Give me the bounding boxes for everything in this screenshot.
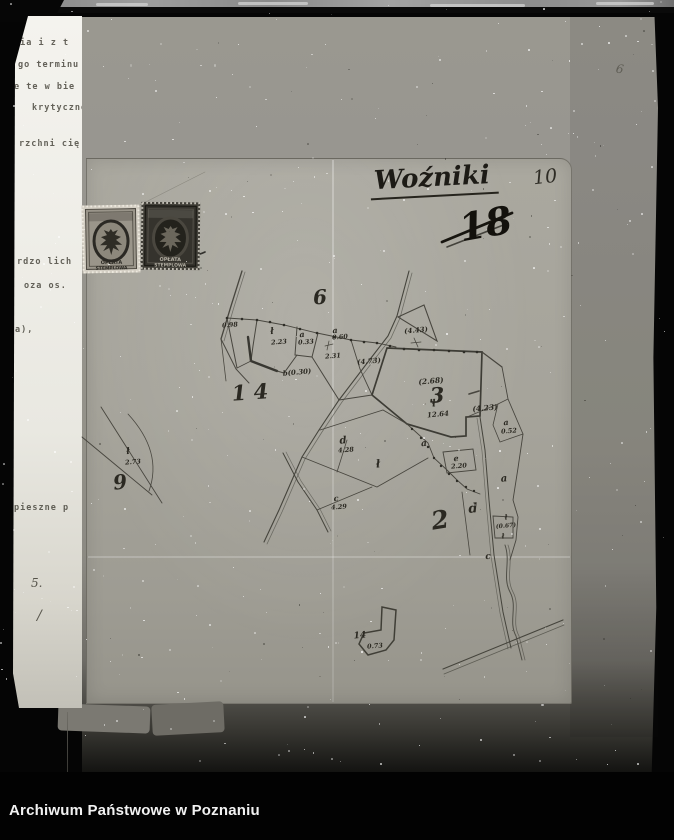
dust-speck bbox=[650, 428, 651, 429]
dust-speck bbox=[378, 108, 379, 109]
dust-speck bbox=[423, 437, 425, 439]
dark-speck bbox=[138, 654, 139, 655]
film-streak bbox=[96, 3, 148, 6]
dark-speck bbox=[548, 544, 549, 545]
dust-speck bbox=[212, 647, 213, 648]
dust-speck bbox=[67, 607, 68, 608]
map-label: 4.29 bbox=[331, 502, 347, 511]
dust-speck bbox=[595, 155, 596, 156]
dust-speck bbox=[70, 461, 72, 463]
dust-speck bbox=[632, 253, 634, 255]
dark-speck bbox=[603, 638, 605, 640]
dust-speck bbox=[608, 42, 610, 44]
dust-speck bbox=[13, 105, 15, 107]
dust-speck bbox=[605, 585, 606, 586]
dust-speck bbox=[616, 489, 618, 491]
dust-speck bbox=[331, 758, 333, 760]
dust-speck bbox=[86, 639, 87, 640]
dust-speck bbox=[91, 503, 92, 504]
dust-speck bbox=[528, 49, 530, 51]
dust-speck bbox=[539, 760, 541, 762]
dust-speck bbox=[476, 455, 477, 456]
dust-speck bbox=[652, 70, 653, 71]
map-label: 0.52 bbox=[501, 426, 517, 435]
dark-speck bbox=[552, 60, 553, 61]
dust-speck bbox=[159, 285, 160, 286]
dark-speck bbox=[127, 448, 129, 450]
dark-speck bbox=[537, 134, 539, 136]
map-label: 0.60 bbox=[332, 332, 348, 341]
dust-speck bbox=[288, 750, 290, 752]
dust-speck bbox=[607, 764, 608, 765]
dark-speck bbox=[323, 612, 324, 613]
dust-speck bbox=[155, 544, 156, 545]
map-label: a bbox=[421, 439, 428, 449]
dust-speck bbox=[641, 111, 642, 112]
dust-speck bbox=[650, 650, 652, 652]
dust-speck bbox=[38, 141, 40, 143]
dust-speck bbox=[326, 173, 327, 174]
dark-speck bbox=[465, 314, 466, 315]
dust-speck bbox=[419, 745, 420, 746]
dust-speck bbox=[388, 180, 390, 182]
dust-speck bbox=[232, 74, 233, 75]
dust-speck bbox=[10, 3, 12, 5]
dust-speck bbox=[303, 488, 305, 490]
dust-speck bbox=[538, 346, 540, 348]
dust-speck bbox=[269, 13, 270, 14]
dust-speck bbox=[388, 660, 389, 661]
dust-speck bbox=[83, 348, 84, 349]
dark-speck bbox=[541, 346, 542, 347]
film-streak bbox=[430, 4, 525, 7]
map-label: 12.64 bbox=[427, 409, 450, 420]
dust-speck bbox=[641, 213, 643, 215]
typed-line: krytyczne bbox=[32, 103, 82, 113]
crossed-out-number: 18 bbox=[455, 197, 515, 251]
caption-bar: Archiwum Państwowe w Poznaniu bbox=[0, 772, 674, 840]
dust-speck bbox=[192, 396, 193, 397]
dust-speck bbox=[361, 651, 362, 652]
stamp-text: STEMPLOWA bbox=[154, 262, 187, 268]
dust-speck bbox=[22, 277, 23, 278]
map-label: c bbox=[333, 493, 339, 503]
dark-speck bbox=[622, 535, 623, 536]
dust-speck bbox=[539, 558, 541, 560]
revenue-stamp-left: OPŁATA STEMPLOWA bbox=[81, 204, 140, 273]
map-label: 9 bbox=[112, 469, 129, 495]
dust-speck bbox=[50, 289, 51, 290]
dust-speck bbox=[516, 642, 517, 643]
dust-speck bbox=[209, 624, 211, 626]
dark-speck bbox=[195, 264, 196, 265]
dust-speck bbox=[12, 377, 13, 378]
map-label: 2.20 bbox=[451, 461, 467, 470]
dark-speck bbox=[231, 216, 233, 218]
dust-speck bbox=[282, 211, 283, 212]
dust-speck bbox=[262, 308, 263, 309]
dust-speck bbox=[183, 516, 184, 517]
dust-speck bbox=[186, 261, 187, 262]
dust-speck bbox=[320, 593, 321, 594]
dust-speck bbox=[149, 64, 150, 65]
dust-speck bbox=[76, 676, 77, 677]
dust-speck bbox=[331, 14, 332, 15]
dust-speck bbox=[284, 188, 286, 190]
typed-line: rdzo lich bbox=[17, 257, 72, 267]
pencil-mark: 6 bbox=[615, 61, 625, 76]
dust-speck bbox=[249, 510, 251, 512]
dust-speck bbox=[278, 754, 280, 756]
dust-speck bbox=[341, 99, 342, 100]
dust-speck bbox=[651, 166, 653, 168]
dust-speck bbox=[103, 575, 104, 576]
dust-speck bbox=[309, 501, 310, 502]
map-label: 1 4 bbox=[231, 378, 269, 405]
dust-speck bbox=[435, 344, 437, 346]
dust-speck bbox=[403, 199, 405, 201]
dust-speck bbox=[84, 229, 86, 231]
dust-speck bbox=[404, 381, 405, 382]
dust-speck bbox=[233, 567, 234, 568]
dust-speck bbox=[256, 126, 257, 127]
dust-speck bbox=[3, 629, 4, 630]
dark-speck bbox=[315, 294, 317, 296]
dust-speck bbox=[637, 763, 639, 765]
dust-speck bbox=[541, 704, 543, 706]
dust-speck bbox=[446, 9, 447, 10]
dust-speck bbox=[199, 370, 200, 371]
dust-speck bbox=[636, 124, 637, 125]
dust-speck bbox=[446, 333, 447, 334]
dust-speck bbox=[276, 19, 277, 20]
dust-speck bbox=[338, 642, 340, 644]
dust-speck bbox=[261, 659, 262, 660]
archive-name-label: Archiwum Państwowe w Poznaniu bbox=[9, 802, 260, 819]
dust-speck bbox=[196, 49, 198, 51]
typed-line: nia i z t bbox=[14, 38, 69, 48]
dust-speck bbox=[458, 449, 460, 451]
page-number: 10 bbox=[532, 165, 558, 189]
dust-speck bbox=[0, 642, 2, 644]
dust-speck bbox=[2, 483, 4, 485]
dust-speck bbox=[170, 295, 171, 296]
dust-speck bbox=[186, 294, 187, 295]
dust-speck bbox=[179, 122, 180, 123]
typed-line: rzchni cię bbox=[19, 139, 80, 149]
dust-speck bbox=[440, 718, 441, 719]
dust-speck bbox=[370, 363, 372, 365]
dust-speck bbox=[74, 322, 75, 323]
dust-speck bbox=[660, 1, 662, 3]
dust-speck bbox=[489, 309, 490, 310]
dust-speck bbox=[183, 162, 184, 163]
dark-speck bbox=[584, 400, 586, 402]
backing-paper-right-shade bbox=[570, 17, 658, 737]
film-edge-band bbox=[0, 0, 674, 13]
dust-speck bbox=[443, 443, 444, 444]
dust-speck bbox=[179, 387, 180, 388]
dust-speck bbox=[535, 721, 536, 722]
map-label: a bbox=[500, 473, 507, 485]
dust-speck bbox=[659, 318, 660, 319]
map-label: 2.73 bbox=[125, 457, 141, 466]
dark-speck bbox=[200, 267, 202, 269]
dust-speck bbox=[111, 19, 112, 20]
map-label: 2.31 bbox=[325, 351, 341, 360]
dust-speck bbox=[445, 628, 446, 629]
dust-speck bbox=[214, 64, 216, 66]
dust-speck bbox=[533, 267, 535, 269]
dust-speck bbox=[275, 449, 276, 450]
dust-speck bbox=[87, 30, 89, 32]
dark-speck bbox=[507, 607, 508, 608]
dust-speck bbox=[141, 657, 142, 658]
dust-speck bbox=[335, 642, 337, 644]
dust-speck bbox=[168, 288, 170, 290]
typed-line: e te w bie bbox=[14, 82, 75, 92]
dark-speck bbox=[307, 143, 309, 145]
dust-speck bbox=[71, 610, 72, 611]
dust-speck bbox=[249, 86, 251, 88]
dust-speck bbox=[485, 137, 487, 139]
typed-line: oza os. bbox=[24, 281, 67, 291]
dust-speck bbox=[420, 659, 422, 661]
dust-speck bbox=[231, 190, 232, 191]
dark-speck bbox=[483, 238, 484, 239]
map-label: ł bbox=[501, 531, 504, 540]
dust-speck bbox=[547, 270, 549, 272]
dust-speck bbox=[340, 761, 341, 762]
fold-crease-horizontal bbox=[88, 556, 570, 558]
map-label: ł bbox=[432, 398, 437, 409]
dust-speck bbox=[16, 86, 17, 87]
dust-speck bbox=[594, 142, 595, 143]
dust-speck bbox=[120, 412, 121, 413]
dust-speck bbox=[254, 632, 256, 634]
dust-speck bbox=[513, 754, 514, 755]
dark-speck bbox=[529, 236, 531, 238]
dark-speck bbox=[549, 608, 551, 610]
dark-speck bbox=[512, 630, 513, 631]
dust-speck bbox=[325, 44, 326, 45]
map-label: 4.28 bbox=[338, 445, 354, 454]
dust-speck bbox=[130, 399, 131, 400]
dust-speck bbox=[543, 8, 545, 10]
dark-speck bbox=[270, 174, 272, 176]
archival-photo-viewer: nia i z tgo terminue te w biekrytycznerz… bbox=[0, 0, 674, 840]
map-label: 0.98 bbox=[222, 320, 238, 329]
dust-speck bbox=[573, 133, 574, 134]
dust-speck bbox=[610, 463, 611, 464]
dust-speck bbox=[367, 207, 368, 208]
dark-speck bbox=[617, 209, 618, 210]
dust-speck bbox=[71, 491, 72, 492]
dust-speck bbox=[343, 586, 345, 588]
dust-speck bbox=[546, 154, 547, 155]
dust-speck bbox=[383, 250, 385, 252]
dust-speck bbox=[499, 450, 501, 452]
dust-speck bbox=[380, 250, 381, 251]
dark-speck bbox=[247, 181, 248, 182]
dust-speck bbox=[565, 21, 566, 22]
dust-speck bbox=[649, 11, 650, 12]
dust-speck bbox=[432, 440, 433, 441]
dark-speck bbox=[641, 689, 642, 690]
stamp-text: OPŁATA bbox=[101, 260, 123, 266]
map-label: a bbox=[503, 417, 509, 427]
film-streak bbox=[238, 2, 308, 5]
dust-speck bbox=[212, 303, 213, 304]
dust-speck bbox=[54, 451, 56, 453]
dust-speck bbox=[177, 692, 179, 694]
dust-speck bbox=[155, 80, 156, 81]
stamp-text: STEMPLOWA bbox=[95, 265, 128, 272]
dust-speck bbox=[191, 439, 192, 440]
dark-speck bbox=[432, 83, 433, 84]
dust-speck bbox=[663, 537, 664, 538]
map-label: c bbox=[485, 552, 491, 562]
dust-speck bbox=[85, 735, 86, 736]
handwritten-mark: / bbox=[37, 608, 42, 624]
dust-speck bbox=[6, 678, 7, 679]
dust-speck bbox=[375, 118, 376, 119]
dust-speck bbox=[108, 264, 109, 265]
dust-speck bbox=[369, 704, 370, 705]
map-label: d bbox=[468, 501, 478, 517]
dust-speck bbox=[91, 169, 92, 170]
dust-speck bbox=[485, 458, 486, 459]
dust-speck bbox=[640, 18, 642, 20]
dust-speck bbox=[3, 463, 5, 465]
film-streak bbox=[596, 2, 654, 5]
dust-speck bbox=[511, 533, 513, 535]
map-label: 2.23 bbox=[271, 337, 287, 346]
dust-speck bbox=[576, 759, 577, 760]
dust-speck bbox=[48, 551, 50, 553]
dust-speck bbox=[598, 69, 599, 70]
dust-speck bbox=[629, 220, 630, 221]
map-label: ł bbox=[270, 327, 274, 337]
dust-speck bbox=[1, 669, 3, 671]
map-label: 14 bbox=[353, 630, 366, 641]
dust-speck bbox=[664, 331, 665, 332]
dust-speck bbox=[14, 589, 15, 590]
dust-speck bbox=[497, 487, 499, 489]
dust-speck bbox=[170, 728, 172, 730]
typed-document-strip: nia i z tgo terminue te w biekrytycznerz… bbox=[13, 16, 82, 708]
dust-speck bbox=[312, 157, 314, 159]
fold-crease-vertical bbox=[332, 160, 334, 702]
dust-speck bbox=[625, 35, 627, 37]
dust-speck bbox=[216, 187, 217, 188]
dark-speck bbox=[386, 300, 388, 302]
dark-speck bbox=[207, 270, 208, 271]
dust-speck bbox=[439, 59, 441, 61]
dust-speck bbox=[545, 627, 546, 628]
map-label: ł bbox=[504, 512, 507, 521]
torn-paper-fragment bbox=[151, 701, 225, 736]
dust-speck bbox=[412, 404, 413, 405]
dust-speck bbox=[176, 410, 178, 412]
dust-speck bbox=[599, 26, 600, 27]
dust-speck bbox=[480, 339, 481, 340]
dust-speck bbox=[453, 605, 454, 606]
dark-speck bbox=[337, 535, 338, 536]
dust-speck bbox=[93, 569, 94, 570]
dark-speck bbox=[351, 98, 353, 100]
dust-speck bbox=[360, 433, 361, 434]
typed-line: go terminu bbox=[18, 60, 79, 70]
dust-speck bbox=[197, 585, 199, 587]
typed-line: pieszne p bbox=[14, 503, 69, 513]
dust-speck bbox=[297, 240, 298, 241]
dust-speck bbox=[293, 181, 294, 182]
dust-speck bbox=[43, 263, 45, 265]
dust-speck bbox=[225, 213, 227, 215]
dust-speck bbox=[130, 64, 132, 66]
dust-speck bbox=[333, 255, 335, 257]
map-label: 0.33 bbox=[298, 337, 314, 346]
dust-speck bbox=[282, 380, 283, 381]
dust-speck bbox=[27, 419, 29, 421]
map-label: 0.73 bbox=[367, 641, 383, 650]
dust-speck bbox=[51, 273, 52, 274]
dust-speck bbox=[260, 268, 262, 270]
dark-speck bbox=[263, 643, 265, 645]
dark-speck bbox=[633, 54, 634, 55]
dark-speck bbox=[319, 676, 320, 677]
dust-speck bbox=[316, 375, 318, 377]
handwritten-mark: 5. bbox=[31, 576, 42, 590]
dust-speck bbox=[104, 724, 105, 725]
dust-speck bbox=[208, 429, 209, 430]
dark-speck bbox=[501, 386, 502, 387]
dust-speck bbox=[314, 176, 315, 177]
dust-speck bbox=[464, 260, 466, 262]
dust-speck bbox=[527, 453, 528, 454]
dust-speck bbox=[580, 305, 581, 306]
dark-speck bbox=[425, 403, 426, 404]
dust-speck bbox=[296, 336, 297, 337]
dust-speck bbox=[50, 601, 51, 602]
dust-speck bbox=[73, 586, 74, 587]
dust-speck bbox=[116, 720, 117, 721]
typed-line: a), bbox=[15, 325, 33, 335]
dust-speck bbox=[53, 193, 54, 194]
dark-speck bbox=[643, 30, 645, 32]
map-label: 6 bbox=[312, 285, 328, 310]
dark-speck bbox=[502, 499, 503, 500]
dust-speck bbox=[130, 607, 131, 608]
revenue-stamp-right: OPŁATA STEMPLOWA bbox=[141, 202, 201, 271]
stamp-text: OPŁATA bbox=[159, 257, 181, 263]
dust-speck bbox=[33, 174, 34, 175]
dust-speck bbox=[612, 549, 613, 550]
dust-speck bbox=[55, 243, 56, 244]
dust-speck bbox=[329, 262, 330, 263]
dust-speck bbox=[573, 110, 575, 112]
dust-speck bbox=[592, 189, 594, 191]
dark-speck bbox=[571, 275, 572, 276]
